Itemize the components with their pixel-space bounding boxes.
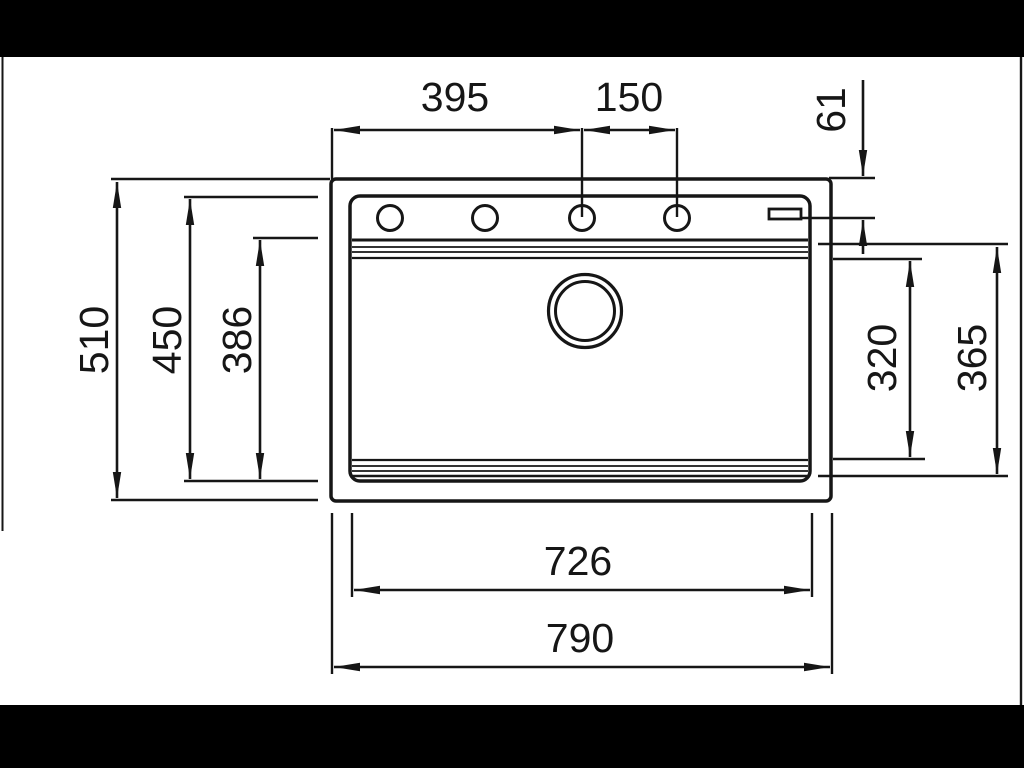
tap-hole-1 — [378, 206, 403, 231]
dimension-label-320: 320 — [859, 324, 905, 392]
drawing-canvas: 395 150 61 510 450 386 320 — [0, 0, 1024, 768]
dim-outer-height: 510 — [71, 179, 330, 500]
dim-inner-height: 365 — [818, 244, 1008, 476]
dim-bowl-depth: 386 — [214, 238, 318, 479]
dimension-label-150: 150 — [595, 74, 663, 120]
dimension-label-395: 395 — [421, 74, 489, 120]
dim-rim-width: 726 — [352, 513, 812, 597]
letterbox-top — [0, 0, 1024, 57]
dimension-label-386: 386 — [214, 306, 260, 374]
dimension-label-365: 365 — [949, 324, 995, 392]
letterbox-bottom — [0, 705, 1024, 768]
overflow-slot — [769, 209, 801, 219]
dimension-label-726: 726 — [544, 538, 612, 584]
dim-corner-offset: 61 — [802, 80, 875, 254]
sink-body — [331, 179, 831, 501]
sink-dimension-drawing: 395 150 61 510 450 386 320 — [0, 0, 1024, 768]
dimension-label-450: 450 — [144, 306, 190, 374]
dim-bowl-height: 320 — [833, 259, 925, 459]
dimension-label-510: 510 — [71, 306, 117, 374]
dimension-label-790: 790 — [546, 615, 614, 661]
drain-inner-circle — [556, 282, 615, 341]
dimension-label-61: 61 — [808, 87, 854, 133]
tap-hole-2 — [473, 206, 498, 231]
drain-outer-circle — [549, 275, 622, 348]
